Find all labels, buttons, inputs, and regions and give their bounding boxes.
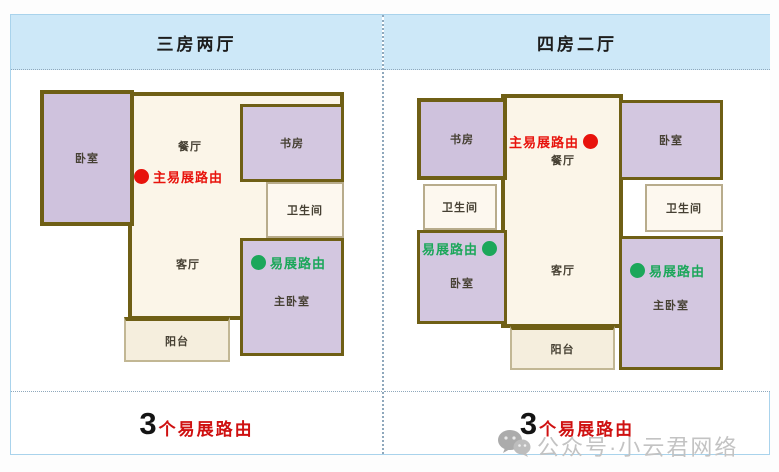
room-label: 主卧室 bbox=[622, 297, 720, 313]
extender-router-marker: 易展路由 bbox=[630, 261, 705, 280]
extender-router-dot bbox=[482, 241, 497, 256]
panel-three-bedroom: 三房两厅 卧室 书房 卫生间 主卧室 bbox=[11, 15, 382, 454]
panel-four-bedroom-header: 四房二厅 bbox=[384, 15, 770, 70]
floorplan1-room-bathroom: 卫生间 bbox=[266, 182, 344, 238]
room-label: 书房 bbox=[450, 131, 474, 147]
room-label: 阳台 bbox=[551, 341, 575, 357]
room-label: 卫生间 bbox=[442, 199, 478, 215]
panel-four-bedroom-title: 四房二厅 bbox=[537, 30, 617, 55]
panel-three-bedroom-body: 卧室 书房 卫生间 主卧室 易展路由 bbox=[11, 70, 382, 391]
floorplan2-room-bathroom-left: 卫生间 bbox=[423, 184, 497, 230]
room-label: 卫生间 bbox=[666, 200, 702, 216]
main-router-dot bbox=[583, 134, 598, 149]
panel-three-bedroom-title: 三房两厅 bbox=[157, 30, 237, 55]
extender-router-dot bbox=[630, 263, 645, 278]
infographic-floorplan-comparison: 三房两厅 卧室 书房 卫生间 主卧室 bbox=[0, 0, 779, 472]
floorplan2-room-bedroom-left: 卧室 易展路由 bbox=[417, 230, 507, 324]
floorplan2-room-study: 书房 bbox=[417, 98, 507, 180]
room-label: 阳台 bbox=[165, 333, 189, 349]
room-label: 卧室 bbox=[75, 150, 99, 166]
floorplan2-room-bedroom-right: 卧室 bbox=[619, 100, 723, 180]
extender-router-label: 易展路由 bbox=[649, 261, 705, 280]
floorplan1-room-bedroom: 卧室 bbox=[40, 90, 134, 226]
extender-router-dot bbox=[251, 255, 266, 270]
panel-four-bedroom-body: 书房 卫生间 卧室 易展路由 卧室 bbox=[384, 70, 770, 391]
floorplan2-room-bathroom-right: 卫生间 bbox=[645, 184, 723, 232]
main-router-marker: 主易展路由 bbox=[509, 132, 598, 151]
floorplan1-room-balcony: 阳台 bbox=[124, 317, 230, 362]
floorplan1-room-study: 书房 bbox=[240, 104, 344, 182]
floorplan2-room-dining-label: 餐厅 bbox=[513, 152, 613, 168]
floorplan1-room-master: 主卧室 易展路由 bbox=[240, 238, 344, 356]
room-label: 卫生间 bbox=[287, 202, 323, 218]
floorplan2-main-area bbox=[501, 94, 623, 328]
floorplan2-room-living-label: 客厅 bbox=[513, 262, 613, 278]
panel-four-bedroom: 四房二厅 书房 卫生间 卧室 易展路由 bbox=[382, 15, 770, 454]
room-label: 卧室 bbox=[420, 275, 504, 291]
comparison-frame: 三房两厅 卧室 书房 卫生间 主卧室 bbox=[10, 14, 770, 455]
panel-four-bedroom-footer: 3 个易展路由 bbox=[384, 391, 770, 454]
panel-three-bedroom-footer: 3 个易展路由 bbox=[11, 391, 382, 454]
router-count: 3 bbox=[139, 408, 156, 439]
floorplan1-room-dining-label: 餐厅 bbox=[160, 138, 220, 154]
extender-router-label: 易展路由 bbox=[270, 253, 326, 272]
router-count: 3 bbox=[520, 408, 537, 439]
main-router-label: 主易展路由 bbox=[509, 132, 579, 151]
extender-router-marker: 易展路由 bbox=[251, 253, 326, 272]
floorplan2-room-master: 主卧室 易展路由 bbox=[619, 236, 723, 370]
extender-router-label: 易展路由 bbox=[422, 239, 478, 258]
floorplan-four-bedroom: 书房 卫生间 卧室 易展路由 卧室 bbox=[417, 94, 725, 372]
panel-three-bedroom-header: 三房两厅 bbox=[11, 15, 382, 70]
room-label: 卧室 bbox=[659, 132, 683, 148]
floorplan2-room-balcony: 阳台 bbox=[510, 326, 615, 370]
room-label: 主卧室 bbox=[243, 293, 341, 309]
floorplan1-room-living-label: 客厅 bbox=[158, 256, 218, 272]
router-count-label: 个易展路由 bbox=[539, 407, 634, 440]
main-router-dot bbox=[134, 169, 149, 184]
floorplan-three-bedroom: 卧室 书房 卫生间 主卧室 易展路由 bbox=[40, 90, 348, 368]
room-label: 书房 bbox=[280, 135, 304, 151]
router-count-label: 个易展路由 bbox=[159, 407, 254, 440]
main-router-marker: 主易展路由 bbox=[134, 167, 223, 186]
extender-router-marker: 易展路由 bbox=[422, 239, 497, 258]
main-router-label: 主易展路由 bbox=[153, 167, 223, 186]
